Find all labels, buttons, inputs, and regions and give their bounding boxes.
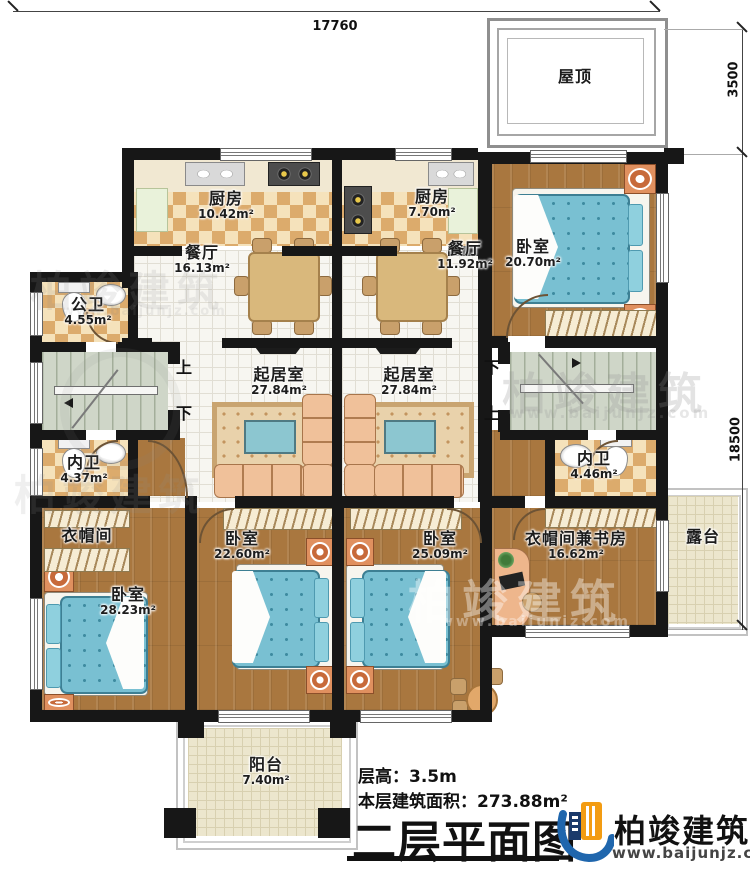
window bbox=[30, 362, 43, 424]
window bbox=[395, 148, 452, 161]
extension-line bbox=[664, 29, 744, 30]
wall bbox=[478, 152, 492, 502]
room-label-terrace: 露台 bbox=[662, 528, 744, 546]
wall bbox=[545, 496, 668, 508]
dimension-tick bbox=[649, 0, 660, 11]
floor-height-text: 层高：3.5m bbox=[358, 762, 457, 787]
stove bbox=[344, 186, 372, 234]
room-label-living-2: 起居室27.84m² bbox=[374, 366, 444, 397]
window bbox=[360, 710, 452, 723]
wall bbox=[545, 430, 555, 505]
room-label-cloak: 衣帽间 bbox=[46, 527, 128, 545]
chair bbox=[252, 238, 272, 253]
pillow bbox=[628, 204, 643, 246]
wall bbox=[222, 338, 332, 348]
wall bbox=[282, 246, 342, 256]
nightstand bbox=[44, 694, 74, 711]
room-label-bedroom-bc2: 卧室25.09m² bbox=[408, 530, 472, 561]
window bbox=[530, 150, 627, 163]
balcony-pier bbox=[318, 808, 350, 838]
door-opening bbox=[86, 430, 116, 440]
wall bbox=[122, 338, 152, 348]
dimension-width: 17760 bbox=[300, 19, 370, 34]
extension-line bbox=[668, 629, 746, 630]
door-opening bbox=[86, 342, 116, 352]
wall bbox=[30, 272, 130, 282]
pillow bbox=[314, 622, 329, 662]
wardrobe bbox=[223, 508, 333, 530]
nightstand bbox=[346, 538, 374, 566]
pillow bbox=[350, 622, 365, 662]
window bbox=[30, 448, 43, 496]
wardrobe bbox=[44, 548, 130, 572]
wall bbox=[30, 496, 150, 508]
chair bbox=[362, 276, 377, 296]
nightstand bbox=[306, 538, 334, 566]
wardrobe bbox=[545, 508, 657, 528]
wall bbox=[500, 430, 668, 440]
coffee-table bbox=[384, 420, 436, 454]
brand-website: www.baijunjz.com bbox=[612, 844, 750, 862]
chair bbox=[422, 320, 442, 335]
room-label-bedroom-tr: 卧室20.70m² bbox=[492, 238, 574, 269]
wall bbox=[480, 496, 492, 722]
sofa bbox=[344, 394, 376, 466]
wall bbox=[342, 246, 397, 256]
room-label-dining-2: 餐厅11.92m² bbox=[433, 240, 497, 271]
room-label-cloak-study: 衣帽间兼书房16.62m² bbox=[500, 530, 652, 561]
balcony-pier bbox=[164, 808, 196, 838]
room-label-balcony: 阳台7.40m² bbox=[216, 756, 316, 787]
nightstand bbox=[624, 164, 656, 194]
window bbox=[218, 710, 310, 723]
sofa-corner bbox=[302, 464, 334, 498]
desk-chair bbox=[522, 592, 542, 612]
stove bbox=[268, 162, 320, 186]
room-label-dining-1: 餐厅16.13m² bbox=[170, 244, 234, 275]
pillow bbox=[314, 578, 329, 618]
sofa bbox=[374, 464, 464, 498]
room-label-bedroom-bl: 卧室28.23m² bbox=[92, 586, 164, 617]
room-label-roof: 屋顶 bbox=[520, 68, 630, 86]
wall bbox=[342, 496, 454, 508]
room-label-public-bath: 公卫4.55m² bbox=[60, 296, 116, 327]
dimension-line-top bbox=[13, 11, 660, 12]
wall bbox=[330, 710, 356, 738]
plan-title-underline bbox=[347, 856, 559, 861]
terrace-floor bbox=[668, 496, 738, 624]
stair-arrow bbox=[64, 398, 73, 408]
dining-table bbox=[248, 252, 320, 322]
window bbox=[30, 292, 43, 336]
wall bbox=[342, 338, 452, 348]
kitchen-sink bbox=[428, 162, 474, 186]
dimension-depth: 18500 bbox=[729, 402, 744, 478]
sofa-corner bbox=[344, 464, 376, 498]
room-label-bath-right: 内卫4.46m² bbox=[566, 450, 622, 481]
room-label-living-1: 起居室27.84m² bbox=[244, 366, 314, 397]
nightstand bbox=[346, 666, 374, 694]
stair-label-down: 下 bbox=[176, 400, 192, 424]
wall bbox=[122, 152, 134, 288]
window bbox=[656, 193, 669, 283]
wardrobe bbox=[350, 508, 462, 530]
wall bbox=[128, 430, 138, 505]
dimension-roof-height: 3500 bbox=[727, 50, 742, 110]
brand-logo-icon bbox=[556, 798, 614, 862]
wall bbox=[545, 336, 668, 348]
fridge bbox=[136, 188, 168, 232]
wall bbox=[178, 710, 204, 738]
chair bbox=[450, 678, 467, 695]
window bbox=[220, 148, 312, 161]
stair-rail bbox=[520, 384, 634, 393]
chair bbox=[234, 276, 249, 296]
stair-label-up: 上 bbox=[484, 400, 500, 424]
room-label-kitchen-2: 厨房7.70m² bbox=[396, 188, 468, 219]
pillow bbox=[46, 648, 61, 688]
room-label-kitchen-1: 厨房10.42m² bbox=[190, 190, 262, 221]
nightstand bbox=[306, 666, 334, 694]
sofa bbox=[302, 394, 334, 466]
door-opening bbox=[588, 430, 616, 440]
brand-logo-svg bbox=[556, 798, 614, 862]
pillow bbox=[350, 578, 365, 618]
window bbox=[30, 598, 43, 690]
stair-rail bbox=[54, 386, 158, 395]
pillow bbox=[46, 604, 61, 644]
chair bbox=[380, 320, 400, 335]
stair-arrow bbox=[572, 358, 581, 368]
wardrobe bbox=[545, 310, 657, 338]
floorplan-canvas: 17760 3500 18500 屋顶 上 下 下 上 bbox=[0, 0, 750, 873]
sofa bbox=[214, 464, 304, 498]
window bbox=[525, 625, 630, 638]
stair-label-up: 上 bbox=[176, 354, 192, 378]
chair bbox=[252, 320, 272, 335]
chair bbox=[294, 320, 314, 335]
coffee-table bbox=[244, 420, 296, 454]
wall bbox=[185, 525, 197, 722]
kitchen-sink bbox=[185, 162, 245, 186]
stair-label-down: 下 bbox=[484, 354, 500, 378]
wall bbox=[332, 152, 342, 502]
wall bbox=[332, 508, 344, 722]
dimension-tick bbox=[7, 0, 18, 11]
room-label-bath-left: 内卫4.37m² bbox=[56, 454, 112, 485]
room-label-bedroom-bc1: 卧室22.60m² bbox=[210, 530, 274, 561]
pillow bbox=[628, 250, 643, 292]
wall bbox=[235, 496, 342, 508]
